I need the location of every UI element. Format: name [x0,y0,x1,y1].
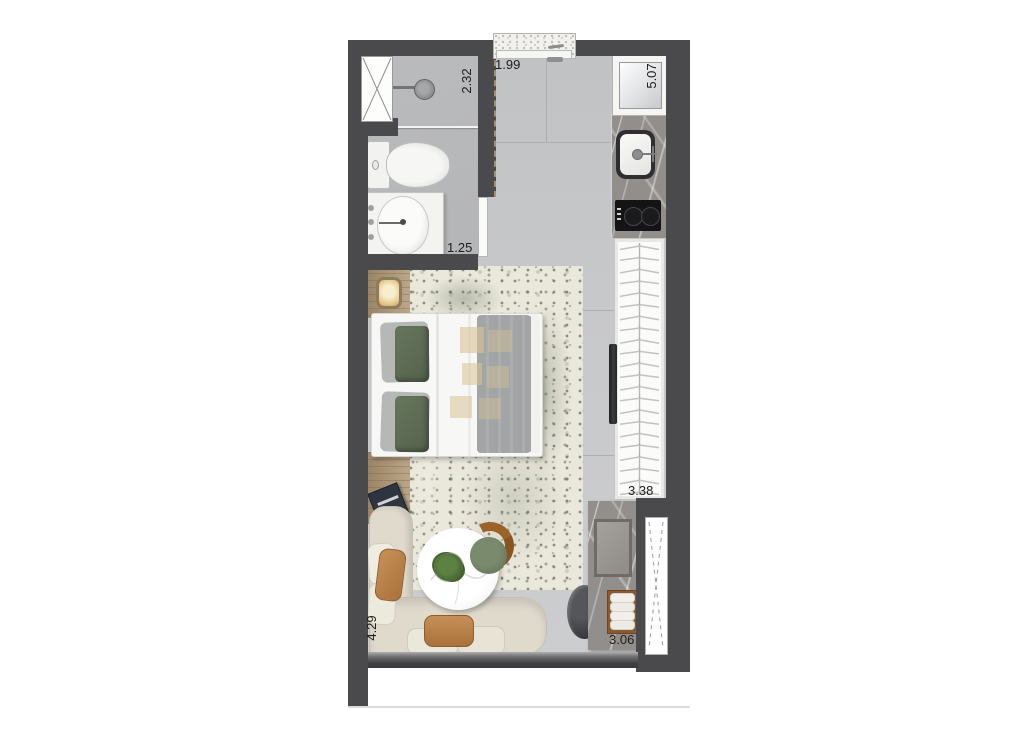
duvet-pattern [479,398,501,419]
toilet-bowl [386,142,450,188]
sofa-cushion-tan [424,615,474,647]
kitchen-faucet-handle [652,146,654,162]
cooktop-burner [641,207,660,226]
vanity-knob [368,234,374,240]
floor-plan: 1.99 2.32 5.07 1.25 3.38 4.29 3.06 [0,0,1024,748]
pillow-green [395,326,429,382]
faucet-spout [400,219,406,225]
entry-door-handle [547,57,563,62]
wall-top-bathroom [348,40,478,56]
wardrobe-hangers-icon [615,239,664,499]
dimension-label-bathroom: 1.25 [447,241,472,255]
bed-sheet-edge [531,315,540,453]
desk-inset [594,519,632,577]
wall-bathroom-bottom [348,254,478,270]
sink-basin [377,196,429,255]
wardrobe [614,238,665,500]
plant-icon [434,553,463,581]
dimension-label-entry: 1.99 [495,58,520,72]
vanity-knob [368,219,374,225]
kitchen-faucet-base [632,149,643,160]
floor-grout-line [546,56,547,142]
floor-grout-line [583,310,615,311]
shower-glass-partition [392,126,478,128]
bathroom-door [478,197,488,257]
balcony-edge-line [348,706,690,708]
pouf [470,537,507,574]
towel-roll [610,620,635,630]
wall-right [666,40,690,672]
tv [609,344,617,424]
dimension-label-desk: 3.06 [609,633,634,647]
floor-grout-line [583,455,615,456]
wall-bathroom-divider [478,40,496,197]
dimension-label-closet: 3.38 [628,484,653,498]
toilet-button [372,160,379,170]
bathroom-window [361,56,393,122]
wall-bottom [368,652,638,668]
floor-grout-line [496,142,614,143]
duvet-pattern [487,366,509,388]
vanity-knob [368,205,374,211]
pillow-green [395,396,429,452]
table-lamp-icon [376,277,402,309]
shower-head-icon [414,79,435,100]
duvet-pattern [488,330,512,352]
cooktop-controls [617,208,621,222]
dimension-label-kitchen: 5.07 [645,53,659,99]
duvet-pattern [460,327,484,353]
dimension-label-living: 4.29 [365,605,379,651]
dimension-label-shower: 2.32 [460,58,474,104]
window-bottom-right [645,517,668,655]
duvet-pattern [450,396,472,418]
duvet-pattern [462,363,482,385]
